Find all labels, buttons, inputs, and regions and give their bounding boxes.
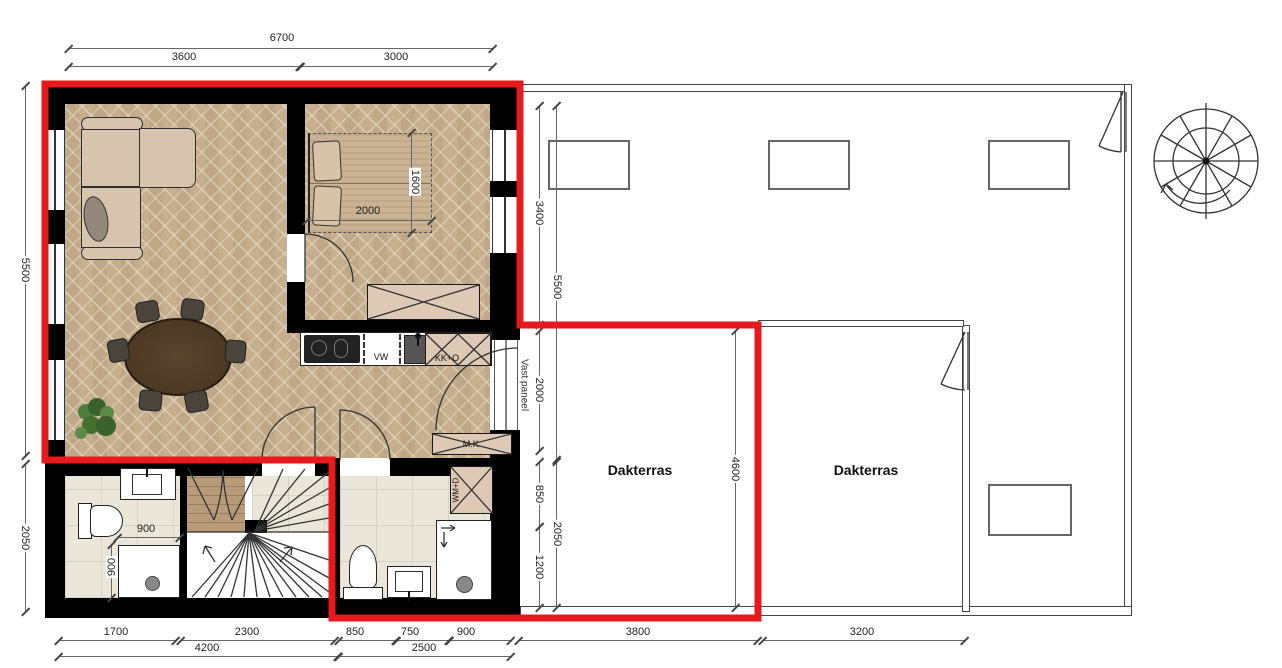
faucet-stem: [417, 338, 419, 346]
dimension-line: [449, 640, 511, 641]
shower-middle: [436, 520, 492, 600]
dimension-label: 900: [137, 523, 155, 535]
dimension-line: [338, 640, 396, 641]
dimension-label: 3800: [626, 626, 650, 638]
dimension-label: 2000: [356, 205, 380, 217]
dimension-label: 3400: [533, 199, 545, 227]
spiral-staircase: [1154, 103, 1258, 219]
dimension-label: 6700: [270, 32, 294, 44]
shower-drain: [145, 576, 160, 591]
terrace-wall-bottom: [520, 606, 1132, 616]
dimension-label: 4200: [193, 642, 221, 654]
dimension-line: [396, 640, 449, 641]
sofa: [80, 116, 200, 262]
toilet-bowl: [90, 505, 123, 537]
dining-chair: [183, 389, 209, 414]
wall-segment: [45, 104, 65, 130]
terrace-skylight-3: [988, 140, 1070, 190]
hall-floor: [187, 468, 245, 532]
sofa-chaise: [139, 128, 196, 188]
dining-chair: [224, 339, 247, 364]
dimension-label: 850: [533, 483, 545, 505]
dimension-label: 4600: [729, 455, 741, 483]
dining-chair: [106, 337, 131, 363]
dimension-line: [68, 66, 300, 67]
dimension-label: 2050: [551, 520, 563, 548]
wall-segment: [45, 440, 65, 460]
dimension-line: [762, 640, 965, 641]
burner: [311, 340, 327, 356]
shower-drain: [456, 576, 473, 593]
dimension-line: [58, 640, 176, 641]
washbasin-middle: [387, 566, 431, 598]
terrace-wall-middle: [758, 320, 964, 327]
terrace-wall-top: [520, 84, 1132, 92]
wall-segment: [490, 84, 520, 130]
dimension-label: 2300: [235, 626, 259, 638]
dining-table: [124, 318, 232, 396]
terrace-wall-right: [1124, 84, 1132, 616]
toilet-middle: [343, 545, 383, 600]
dimension-line: [180, 640, 335, 641]
window: [45, 360, 65, 440]
fixed-panel-label: Vast paneel: [519, 359, 530, 411]
basin-tap: [146, 467, 148, 477]
dimension-line: [300, 66, 493, 67]
cooktop: [304, 335, 360, 363]
dimension-label: 750: [401, 626, 419, 638]
dimension-label: 900: [106, 556, 118, 578]
terrace-divider-wall: [962, 325, 970, 612]
shower-left: [118, 545, 180, 598]
window: [45, 244, 65, 324]
dining-chair: [180, 298, 206, 322]
door-opening: [262, 458, 315, 476]
toilet-left: [78, 503, 124, 539]
roof-terrace-label: Dakterras: [608, 462, 673, 478]
terrace-skylight-2: [768, 140, 850, 190]
dimension-label: 5500: [19, 256, 31, 284]
terrace-skylight-4: [988, 484, 1072, 536]
wall-midbath-left: [330, 460, 340, 618]
wall-segment: [45, 210, 65, 244]
fixed-panel: [494, 340, 518, 430]
wall-stub: [245, 520, 267, 533]
dimension-line: [58, 656, 338, 657]
sofa-armrest-bottom: [81, 246, 143, 260]
dimension-label: 3600: [172, 51, 196, 63]
window: [492, 130, 518, 181]
terrace-door-1: [1099, 92, 1126, 152]
dimension-line: [117, 537, 180, 538]
meter-cupboard-label: M.K.: [463, 439, 482, 449]
dimension-line: [68, 48, 493, 49]
wall-segment: [287, 282, 305, 320]
terrace-skylight-1: [548, 140, 630, 190]
dimension-label: 2000: [533, 376, 545, 404]
dimension-label: 900: [457, 626, 475, 638]
dining-chair: [138, 389, 163, 412]
dimension-label: 3200: [850, 626, 874, 638]
dimension-label: 2500: [410, 642, 438, 654]
pillow: [312, 140, 342, 181]
dimension-line: [306, 220, 432, 221]
dimension-label: 1200: [533, 553, 545, 581]
washer-dryer-label: WM+D: [452, 478, 461, 503]
roof-terrace-label: Dakterras: [834, 462, 899, 478]
washbasin-left: [120, 468, 176, 500]
wall-top: [45, 84, 520, 104]
toilet-bowl: [349, 545, 377, 589]
door-opening: [287, 232, 305, 282]
dimension-line: [518, 640, 758, 641]
sofa-seat-line: [82, 186, 140, 188]
wall-mullion: [490, 181, 520, 197]
basin-bowl: [395, 571, 423, 592]
wardrobe: [367, 284, 480, 320]
window: [45, 130, 65, 210]
dimension-label: 5500: [551, 273, 563, 301]
floor-plan: VW KK+O M.K. WM+D Vast paneel Dakterras …: [0, 0, 1282, 668]
burner: [334, 339, 348, 358]
basin-tap: [408, 591, 410, 601]
wall-left-lower: [45, 460, 65, 618]
toilet-tank: [343, 587, 383, 600]
dimension-label: 3000: [384, 51, 408, 63]
dimension-label: 1700: [104, 626, 128, 638]
dishwasher-label: VW: [374, 352, 389, 362]
dimension-label: 1600: [409, 168, 421, 196]
dimension-line: [338, 656, 511, 657]
dining-chair: [134, 299, 160, 324]
door-opening: [340, 458, 390, 476]
window: [492, 197, 518, 253]
wall-bottom: [45, 598, 520, 618]
wall-bedroom-divider: [287, 104, 305, 234]
dimension-label: 850: [346, 626, 364, 638]
dimension-label: 2050: [19, 524, 31, 552]
wall-segment: [45, 324, 65, 360]
fridge-oven-label: KK+O: [435, 353, 459, 363]
stairs-floor: [187, 532, 330, 598]
basin-bowl: [132, 474, 162, 495]
